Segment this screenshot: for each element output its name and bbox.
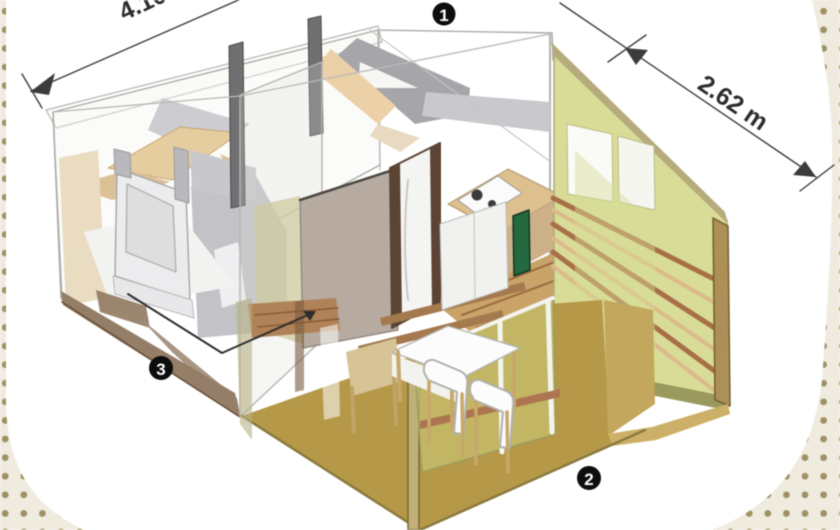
svg-text:1: 1 — [439, 6, 448, 25]
svg-text:2: 2 — [584, 470, 593, 489]
svg-text:3: 3 — [156, 360, 165, 379]
